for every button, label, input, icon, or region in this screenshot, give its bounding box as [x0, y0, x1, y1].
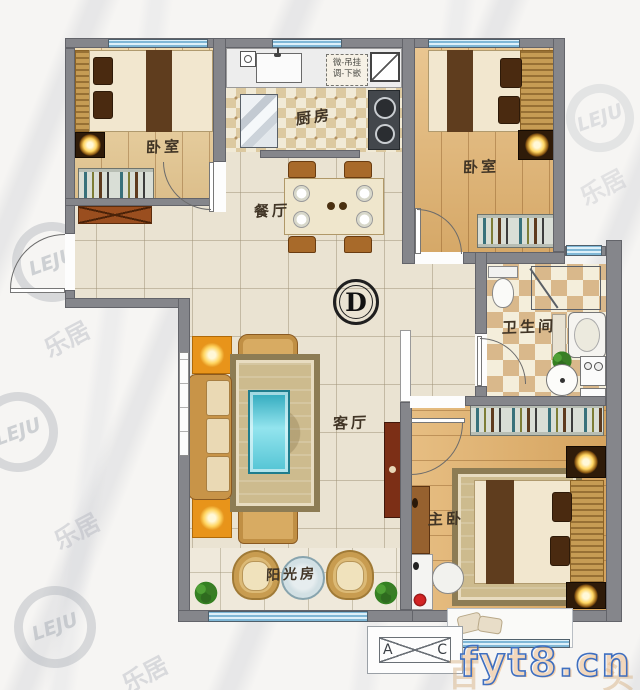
wall	[465, 396, 606, 406]
shoe-cabinet	[78, 206, 152, 224]
wall	[65, 48, 75, 202]
entry-door-gap	[65, 234, 75, 290]
pillow	[552, 492, 572, 522]
wall	[412, 610, 450, 622]
leju-cn-watermark: 乐居	[47, 503, 106, 556]
plant	[192, 580, 220, 606]
half-wall	[400, 330, 411, 402]
door-gap	[410, 396, 465, 408]
window	[108, 39, 208, 48]
ac-platform-box: A C	[379, 637, 451, 663]
pillow	[498, 96, 520, 124]
window	[566, 245, 602, 256]
room-label-bedroom-tl: 卧室	[146, 139, 183, 155]
chair-cushion	[336, 561, 364, 591]
wall	[553, 38, 565, 252]
room-label-sunroom: 阳光房	[266, 567, 318, 583]
wall	[213, 38, 226, 162]
ac-label-right: C	[437, 642, 447, 658]
wall	[178, 298, 190, 622]
room-label-bathroom: 卫生间	[502, 319, 557, 336]
side-window	[179, 352, 189, 456]
kitchen-note: 微-吊挂 调-下嵌	[326, 54, 368, 86]
leju-watermark-icon: LEJU	[0, 381, 69, 484]
lamp-glow	[198, 504, 226, 532]
pillow	[500, 58, 522, 88]
sofa-cushion	[206, 380, 230, 416]
table-decor	[339, 202, 347, 210]
tv-knob	[389, 466, 396, 473]
wall	[475, 252, 487, 334]
floorplan-image: LEJU 乐居 LEJU 乐居 LEJU 乐居 LEJU 乐居 微-吊挂 调-下…	[0, 0, 640, 690]
sunroom-window	[208, 611, 368, 622]
site-watermark: fyt8.cn	[460, 640, 632, 686]
lamp-glow	[79, 134, 101, 156]
kitchen-note-line1: 微-吊挂	[327, 58, 367, 69]
dining-chair	[344, 236, 372, 253]
toilet	[492, 278, 514, 308]
unit-type-letter: D	[339, 285, 373, 319]
wardrobe-shelf	[78, 168, 154, 202]
coffee-table	[248, 390, 290, 474]
plate	[356, 185, 373, 202]
leju-watermark-icon: LEJU	[556, 74, 640, 161]
leju-watermark-icon: LEJU	[2, 574, 107, 679]
lamp-glow	[198, 341, 226, 369]
floor-drain-icon	[244, 55, 252, 63]
bed-runner	[447, 50, 473, 132]
ac-label-left: A	[383, 642, 393, 658]
bed-runner	[146, 50, 172, 132]
bathtub-basin	[574, 318, 600, 352]
faucet-icon	[274, 53, 281, 57]
wall	[260, 150, 360, 158]
pillow	[550, 536, 570, 566]
plant	[372, 580, 400, 606]
dresser-item	[413, 562, 419, 570]
table-decor	[327, 202, 335, 210]
sofa-cushion	[206, 418, 230, 454]
desk-chair	[432, 562, 464, 594]
dining-chair	[288, 161, 316, 178]
wardrobe-shelf	[477, 214, 555, 248]
burner-icon	[375, 124, 395, 144]
window	[272, 39, 342, 48]
leju-cn-watermark: 乐居	[573, 159, 632, 212]
room-label-dining: 餐厅	[254, 203, 291, 219]
room-label-living: 客厅	[333, 415, 370, 431]
corridor-floor	[400, 264, 478, 406]
plate	[293, 185, 310, 202]
washer-knob-icon	[594, 362, 603, 371]
sink-drain	[560, 378, 565, 383]
door-gap	[213, 162, 226, 212]
dining-chair	[288, 236, 316, 253]
leju-cn-watermark: 乐居	[37, 311, 96, 364]
dining-chair	[344, 161, 372, 178]
washing-machine	[580, 356, 606, 386]
wall	[606, 240, 622, 622]
range-hood-icon	[370, 52, 400, 82]
wall	[65, 202, 75, 234]
lamp-glow	[574, 584, 598, 608]
plate	[356, 211, 373, 228]
unit-type-mark: D	[333, 279, 379, 325]
wall	[65, 298, 190, 308]
desk-item	[412, 498, 418, 508]
wardrobe-shelf	[470, 404, 604, 436]
window	[428, 39, 520, 48]
pillow	[93, 91, 113, 119]
pillow	[93, 57, 113, 85]
shower-enclosure	[531, 266, 601, 310]
room-label-master: 主卧	[428, 511, 465, 527]
kitchen-note-line2: 调-下嵌	[327, 69, 367, 80]
plate	[293, 211, 310, 228]
refrigerator	[240, 94, 278, 148]
bed-runner	[486, 480, 514, 584]
room-label-bedroom-tr: 卧室	[463, 159, 500, 175]
leju-cn-watermark: 乐居	[115, 646, 174, 690]
lamp-glow	[525, 133, 549, 157]
washer-knob-icon	[584, 362, 592, 370]
toilet	[488, 266, 518, 278]
wall	[402, 38, 415, 264]
bed-headboard	[520, 50, 554, 132]
lamp-glow	[574, 450, 598, 474]
flower-decor	[412, 592, 428, 608]
sofa-cushion	[206, 456, 230, 492]
burner-icon	[374, 97, 396, 119]
bed-headboard	[570, 480, 604, 584]
kitchen-sink	[256, 53, 302, 83]
